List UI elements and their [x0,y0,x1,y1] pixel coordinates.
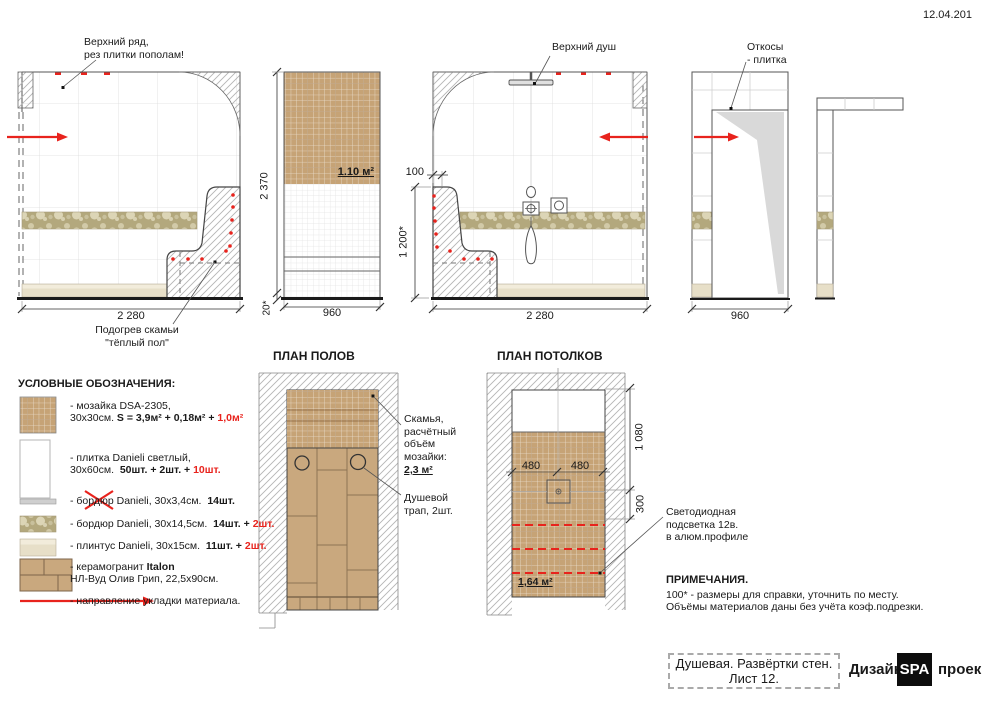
floor-plan-title: ПЛАН ПОЛОВ [273,350,355,363]
legend-item-tile: - плитка Danieli светлый, [70,452,191,465]
label-bench-mosaic: Скамья, расчётный объём мозайки: [404,413,456,463]
area-e2: 1.10 м² [338,167,374,178]
notes-title: ПРИМЕЧАНИЯ. [666,574,748,587]
drawing-sheet: 12.04.201 Верхний ряд, рез плитки попола… [0,0,990,706]
legend-item-porcelain-l2: НЛ-Вуд Олив Грип, 22,5х90см. [70,573,218,586]
dim-e4-width: 960 [731,311,749,322]
notes-line-2: Объёмы материалов даны без учёта коэф.по… [666,601,923,614]
note-bench-heating: Подогрев скамьи "тёплый пол" [95,324,179,349]
legend-item-plinth: - плинтус Danieli, 30х15см. 11шт. + 2шт. [70,540,267,553]
sheet-date: 12.04.201 [923,10,972,21]
dim-cp-1080: 1 080 [635,423,646,451]
notes-line-1: 100* - размеры для справки, уточнить по … [666,589,899,602]
dim-e2-height: 2 370 [260,172,271,200]
legend-item-mosaic: - мозайка DSA-2305, [70,400,171,413]
brand-left: Дизайн [849,661,903,678]
legend-item-direction: - направление укладки материала. [70,595,240,608]
border-thin-swatch [20,499,56,504]
label-drain: Душевой трап, 2шт. [404,492,453,517]
elevation-4 [688,62,903,313]
dim-cp-480-left: 480 [522,461,540,472]
dim-e3-bench: 100 [400,167,424,178]
note-top-row: Верхний ряд, рез плитки пополам! [84,36,184,61]
tile-swatch [20,440,50,498]
elevation-1 [7,60,244,324]
title-block-line-1: Душевая. Развёртки стен. [676,656,833,671]
dim-cp-300: 300 [636,495,647,513]
label-bench-area: 2,3 м² [404,464,433,477]
brand-logo: SPA [897,653,932,686]
dim-e2-width: 960 [323,308,341,319]
brand-right: проек [938,661,981,678]
dim-e1-width: 2 280 [117,311,145,322]
legend-item-tile-l2: 30х60см. 50шт. + 2шт. + 10шт. [70,464,221,477]
note-door-reveal: Откосы - плитка [747,41,787,66]
dim-e3-height: 1 200* [399,226,410,258]
dim-cp-480-right: 480 [571,461,589,472]
ceiling-plan-drawing [487,368,663,615]
title-block-line-2: Лист 12. [729,671,779,686]
floor-plan-drawing [259,373,401,628]
dim-e2-base: 20* [262,300,273,315]
label-led: Светодиодная подсветка 12в. в алюм.профи… [666,506,748,544]
legend-item-border-decor: - бордюр Danieli, 30х14,5см. 14шт. + 2шт… [70,518,274,531]
border-decor-swatch [20,516,56,532]
legend-item-porcelain: - керамогранит Italon [70,561,175,574]
legend-title: УСЛОВНЫЕ ОБОЗНАЧЕНИЯ: [18,378,175,391]
title-block: Душевая. Развёртки стен. Лист 12. [668,653,840,689]
legend-item-mosaic-l2: 30х30см. S = 3,9м² + 0,18м² + 1,0м² [70,412,243,425]
label-ceiling-area: 1,64 м² [518,576,553,589]
legend-item-border-thin: - бордюр Danieli, 30х3,4см. 14шт. [70,495,235,508]
door-jamb-profile [815,98,903,299]
elevation-2 [272,68,384,311]
dim-e3-width: 2 280 [526,311,554,322]
elevation-3 [411,56,651,313]
ceiling-plan-title: ПЛАН ПОТОЛКОВ [497,350,602,363]
note-overhead-shower: Верхний душ [552,41,616,54]
